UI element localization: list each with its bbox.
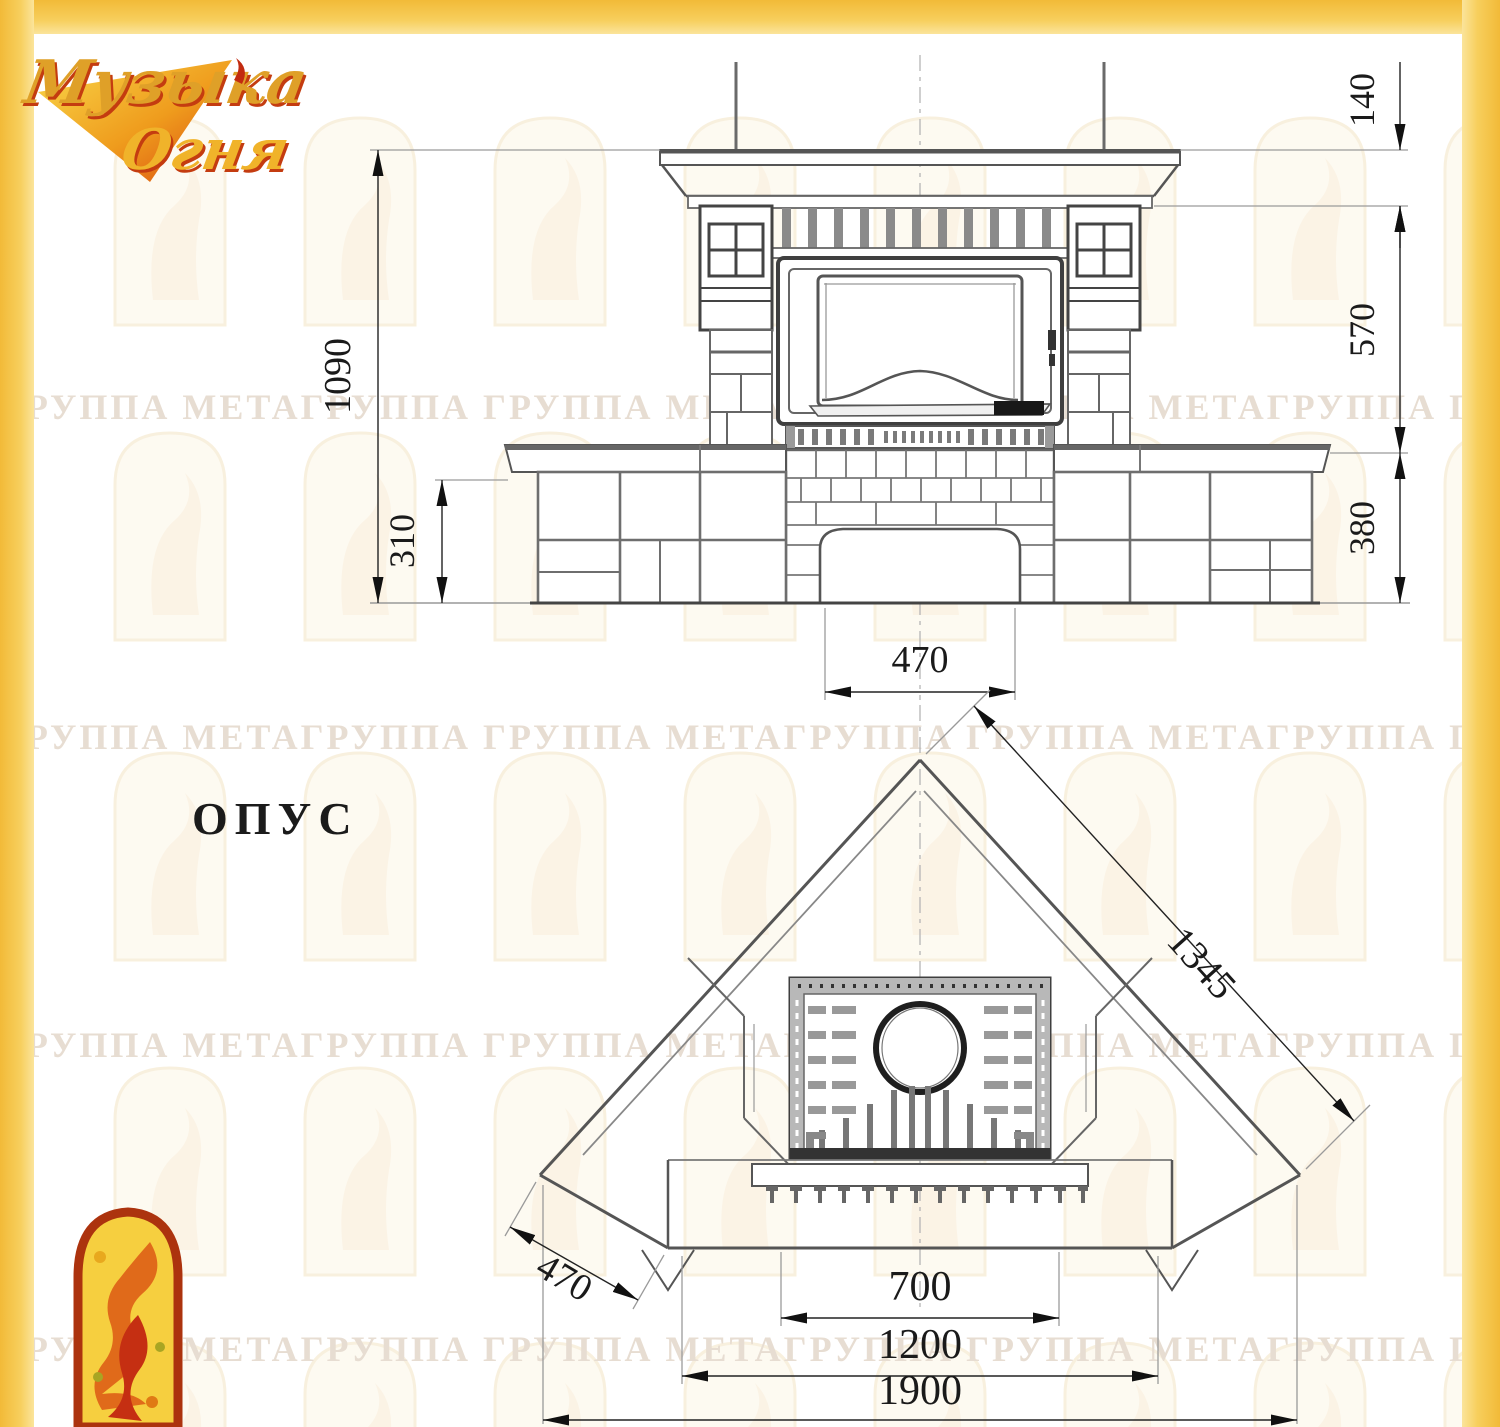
dim-front-crown-height: 140: [1342, 73, 1382, 127]
page: ГРУППА МЕТАГРУППА ГРУППА МЕТАГРУППА ГРУП…: [0, 0, 1500, 1427]
plan-view-drawing: [540, 705, 1300, 1312]
dim-plan-corner-edge: 470: [529, 1245, 599, 1310]
dim-plan-firebox-width: 700: [889, 1264, 952, 1310]
dim-front-arch-width: 470: [892, 639, 949, 681]
logo-word1: Музыка: [17, 47, 312, 117]
flame-window-icon: [0, 1197, 220, 1427]
dim-plan-side-depth: 1345: [1159, 918, 1246, 1008]
frame-right-band: [1462, 0, 1500, 1427]
dim-front-plinth-height: 310: [382, 514, 422, 568]
logo-word2: Огня: [117, 117, 294, 182]
dim-plan-front-width: 1200: [878, 1322, 962, 1368]
dim-front-bench-height: 380: [1342, 501, 1382, 555]
dim-front-body-height: 570: [1342, 303, 1382, 357]
brand-logo: Музыка Музыка Огня Огня: [0, 0, 320, 220]
dim-front-total-height: 1090: [317, 338, 359, 414]
front-elevation-drawing: [370, 55, 1410, 700]
dim-plan-overall-width: 1900: [878, 1368, 962, 1414]
model-name-label: ОПУС: [192, 792, 359, 845]
